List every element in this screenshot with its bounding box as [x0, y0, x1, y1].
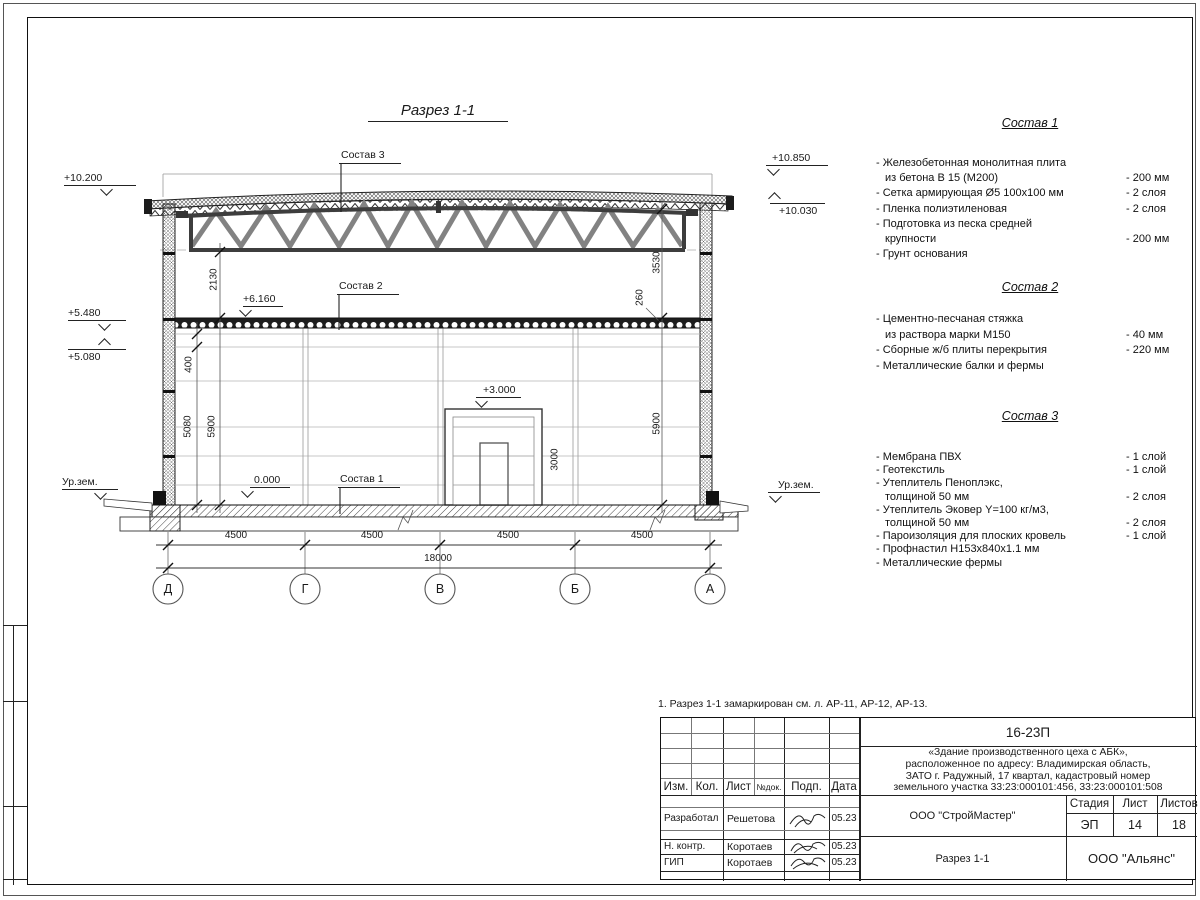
composition-3-rows: - Мембрана ПВХ- 1 слой - Геотекстиль- 1 … — [876, 451, 1184, 570]
floor-0000 — [152, 505, 738, 517]
sostav3-label: Состав 3 — [339, 149, 401, 164]
drawing-sheet: { "drawing": { "title": "Разрез 1-1", "l… — [0, 0, 1200, 900]
row-name-gip: Коротаев — [727, 854, 784, 871]
sostav2-label: Состав 2 — [337, 280, 399, 295]
dim-5080: 5080 — [183, 405, 194, 449]
dim-3530: 3530 — [652, 241, 663, 285]
list-item: - Мембрана ПВХ- 1 слой — [876, 451, 1184, 464]
composition-1-rows: - Железобетонная монолитная плита из бет… — [876, 156, 1184, 262]
elevation-6160: +6.160 — [243, 293, 283, 307]
elevation-5080: +5.080 — [68, 349, 126, 364]
ground-level-right: Ур.зем. — [768, 479, 820, 493]
list-item: толщиной 50 мм- 2 слоя — [876, 491, 1184, 504]
interior-lines — [175, 334, 700, 485]
list-item: - Подготовка из песка средней — [876, 217, 1184, 232]
dimension-chains — [197, 198, 662, 513]
composition-1-title: Состав 1 — [876, 116, 1184, 130]
dim-span-4: 4500 — [612, 530, 672, 541]
row-date-gip: 05.23 — [829, 854, 859, 871]
col-podp: Подп. — [784, 778, 829, 795]
list-item: - Металлические фермы — [876, 557, 1184, 570]
row-role-gip: ГИП — [664, 854, 723, 871]
composition-3-title: Состав 3 — [876, 409, 1184, 423]
dim-span-3: 4500 — [478, 530, 538, 541]
ground-floor — [104, 491, 748, 531]
row-name-ncontrol: Коротаев — [727, 839, 784, 854]
drawing-title: Разрез 1-1 — [368, 102, 508, 122]
signature-developer — [787, 808, 828, 830]
composition-2-title: Состав 2 — [876, 280, 1184, 294]
list-item: из бетона В 15 (М200)- 200 мм — [876, 171, 1184, 186]
sheet-value: 14 — [1113, 813, 1157, 836]
axis-label-v: В — [424, 582, 456, 596]
elevation-3000: +3.000 — [476, 384, 521, 398]
dim-400: 400 — [184, 343, 195, 387]
dim-span-1: 4500 — [206, 530, 266, 541]
row-date-developer: 05.23 — [829, 807, 859, 830]
col-kol: Кол. — [691, 778, 723, 795]
doc-number: 16-23П — [859, 718, 1197, 746]
sostav1-label: Состав 1 — [338, 473, 400, 488]
sub-base — [120, 517, 738, 531]
floor-slab — [175, 318, 700, 328]
list-item: - Пароизоляция для плоских кровель- 1 сл… — [876, 530, 1184, 543]
list-item: из раствора марки М150- 40 мм — [876, 328, 1184, 344]
title-block: Изм. Кол. Лист №док. Подп. Дата Разработ… — [660, 717, 1196, 880]
dim-2130: 2130 — [209, 258, 220, 302]
list-item: - Железобетонная монолитная плита — [876, 156, 1184, 171]
col-ndok: №док. — [754, 778, 784, 795]
sheets-value: 18 — [1157, 813, 1200, 836]
composition-3: Состав 3 - Мембрана ПВХ- 1 слой - Геотек… — [876, 409, 1184, 570]
list-item: толщиной 50 мм- 2 слоя — [876, 517, 1184, 530]
col-data: Дата — [829, 778, 859, 795]
elevation-10850: +10.850 — [766, 152, 828, 166]
list-item: крупности- 200 мм — [876, 232, 1184, 247]
composition-leaders — [339, 163, 341, 514]
right-base-plate — [706, 491, 719, 505]
right-foundation — [695, 505, 723, 520]
list-item: - Сетка армирующая Ø5 100х100 мм- 2 слоя — [876, 186, 1184, 201]
ground-level-left: Ур.зем. — [62, 476, 118, 490]
stage-label: Стадия — [1066, 795, 1113, 813]
elevation-10030: +10.030 — [770, 203, 825, 218]
list-item: - Утеплитель Пеноплэкс, — [876, 477, 1184, 490]
list-item: - Пленка полиэтиленовая- 2 слоя — [876, 202, 1184, 217]
left-base-plate — [153, 491, 166, 505]
dim-total: 18000 — [403, 553, 473, 564]
col-izm: Изм. — [661, 778, 691, 795]
dim-5900-right: 5900 — [652, 402, 663, 446]
axis-label-d: Д — [152, 582, 184, 596]
sheet-label: Лист — [1113, 795, 1157, 813]
object-description: «Здание производственного цеха с АБК», р… — [863, 746, 1193, 795]
stage-value: ЭП — [1066, 813, 1113, 836]
axis-label-a: А — [694, 582, 726, 596]
dim-260: 260 — [635, 283, 646, 313]
elevation-5480: +5.480 — [68, 307, 126, 321]
row-role-developer: Разработал — [664, 807, 723, 830]
list-item: - Геотекстиль- 1 слой — [876, 464, 1184, 477]
row-date-ncontrol: 05.23 — [829, 839, 859, 854]
roof-right-cap — [726, 196, 734, 210]
list-item: - Металлические балки и фермы — [876, 359, 1184, 375]
list-item: - Грунт основания — [876, 247, 1184, 262]
elevation-0000: 0.000 — [250, 474, 290, 488]
roof-left-cap — [144, 199, 152, 214]
dim-5900-left: 5900 — [207, 405, 218, 449]
gate — [445, 409, 542, 505]
signature-gip — [787, 853, 828, 872]
left-wall — [163, 204, 175, 505]
composition-1: Состав 1 - Железобетонная монолитная пли… — [876, 116, 1184, 262]
sheet-section-name: Разрез 1-1 — [859, 836, 1066, 881]
left-foundation — [150, 505, 180, 531]
company-name: ООО "Альянс" — [1066, 836, 1197, 881]
row-name-developer: Решетова — [727, 807, 784, 830]
left-apron — [104, 499, 152, 511]
dim-3000: 3000 — [550, 438, 561, 482]
dim-span-2: 4500 — [342, 530, 402, 541]
composition-2-rows: - Цементно-песчаная стяжка из раствора м… — [876, 312, 1184, 374]
axis-label-b: Б — [559, 582, 591, 596]
col-list: Лист — [723, 778, 754, 795]
right-wall — [700, 203, 712, 505]
list-item: - Профнастил Н153х840х1.1 мм — [876, 543, 1184, 556]
list-item: - Утеплитель Эковер Y=100 кг/м3, — [876, 504, 1184, 517]
row-role-ncontrol: Н. контр. — [664, 839, 723, 854]
composition-2: Состав 2 - Цементно-песчаная стяжка из р… — [876, 280, 1184, 374]
axis-label-g: Г — [289, 582, 321, 596]
elevation-10200: +10.200 — [64, 172, 136, 186]
right-apron — [720, 501, 748, 513]
list-item: - Цементно-песчаная стяжка — [876, 312, 1184, 328]
org-name: ООО "СтройМастер" — [859, 795, 1066, 836]
sheet-note: 1. Разрез 1-1 замаркирован см. л. АР-11,… — [658, 698, 927, 710]
list-item: - Сборные ж/б плиты перекрытия- 220 мм — [876, 343, 1184, 359]
sheets-label: Листов — [1157, 795, 1200, 813]
